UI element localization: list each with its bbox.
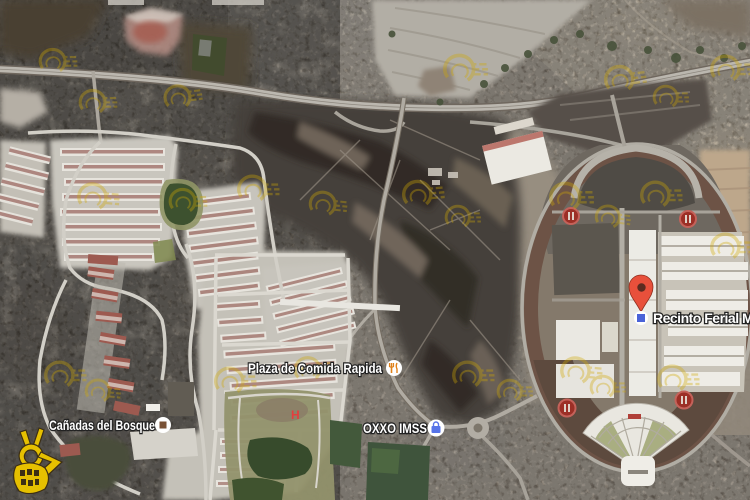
svg-text:Recinto Ferial Mic: Recinto Ferial Mic (653, 310, 750, 326)
svg-text:H: H (291, 408, 300, 422)
svg-text:Cañadas del Bosque: Cañadas del Bosque (49, 417, 155, 433)
svg-text:Plaza de Comida Rapida: Plaza de Comida Rapida (248, 360, 382, 376)
svg-text:OXXO IMSS: OXXO IMSS (363, 420, 427, 436)
